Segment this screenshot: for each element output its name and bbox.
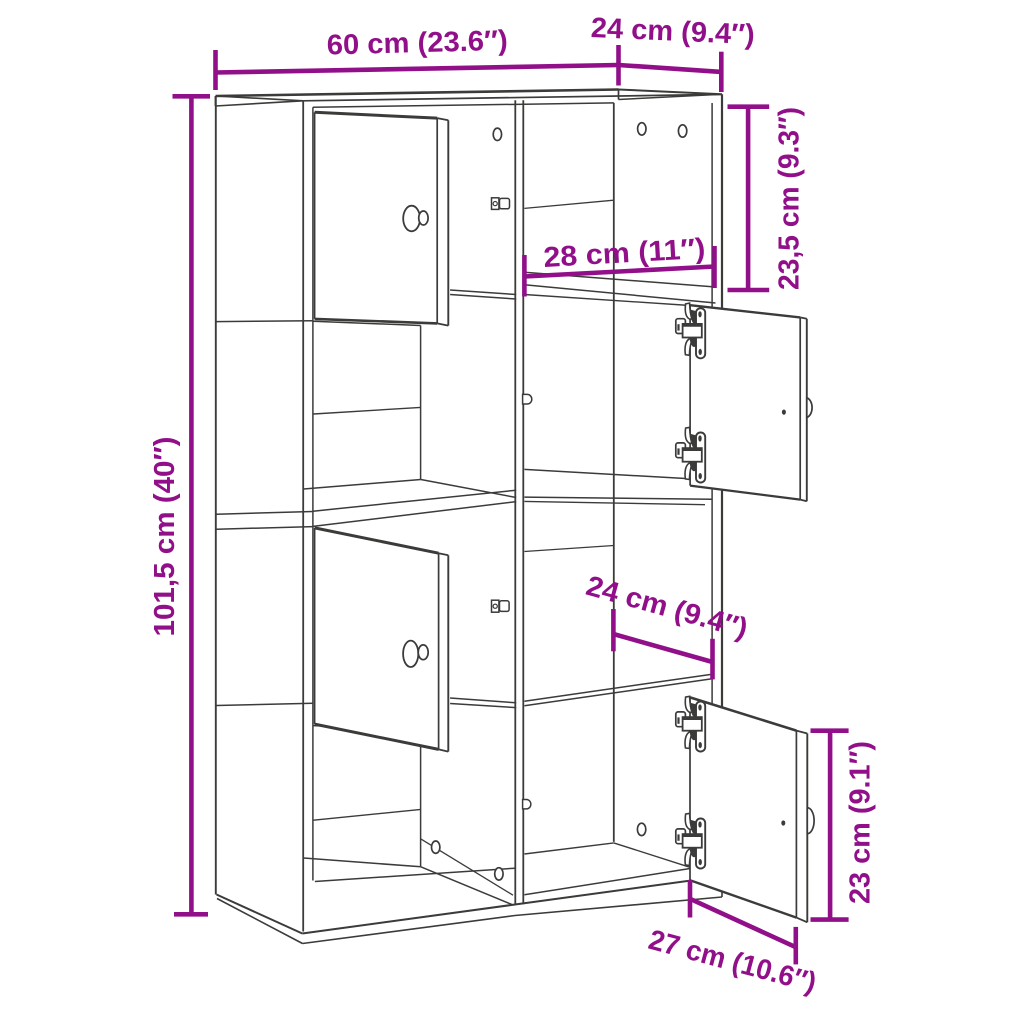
svg-text:60 cm (23.6″): 60 cm (23.6″): [326, 25, 508, 62]
svg-text:101,5 cm (40″): 101,5 cm (40″): [149, 437, 181, 637]
svg-text:23,5 cm (9.3″): 23,5 cm (9.3″): [774, 107, 806, 290]
svg-text:23 cm (9.1″): 23 cm (9.1″): [845, 741, 877, 904]
